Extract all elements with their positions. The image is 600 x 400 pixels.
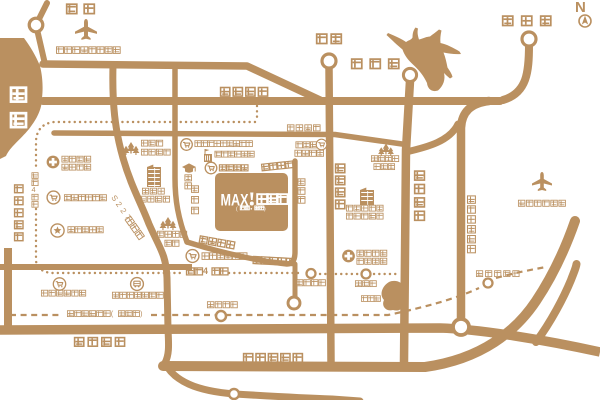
svg-text:4: 4	[203, 266, 208, 276]
svg-text:4: 4	[32, 185, 36, 194]
svg-text:N: N	[575, 0, 586, 16]
